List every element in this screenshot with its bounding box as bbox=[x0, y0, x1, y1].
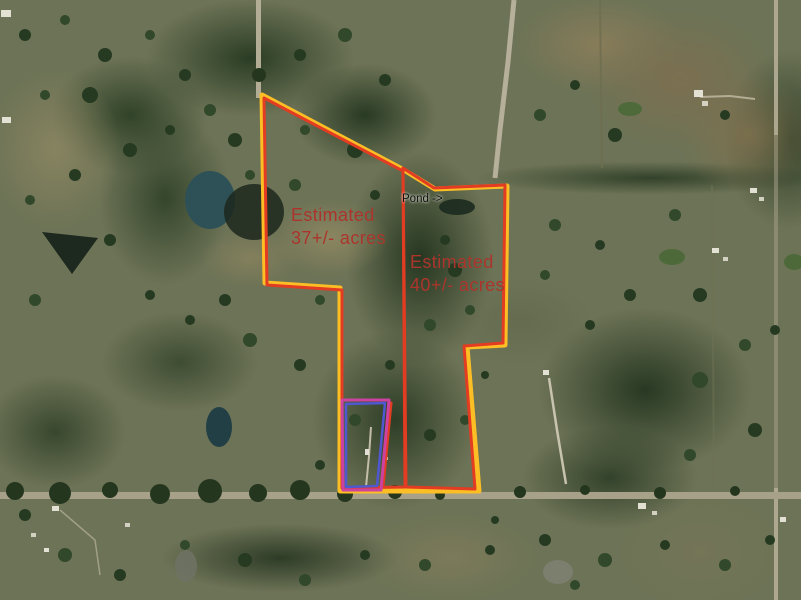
pond-label: Pond -> bbox=[402, 193, 443, 205]
driveways bbox=[366, 378, 566, 487]
satellite-map: Estimated 37+/- acres Estimated 40+/- ac… bbox=[0, 0, 801, 600]
parcel-40-acreage-label: Estimated 40+/- acres bbox=[410, 251, 505, 297]
parcel-37-acreage-label: Estimated 37+/- acres bbox=[291, 204, 386, 250]
pond-small-left bbox=[206, 407, 232, 447]
map-features-layer bbox=[0, 0, 801, 600]
ponds bbox=[42, 102, 801, 584]
pond-right-edge bbox=[784, 254, 801, 270]
road-tree-line bbox=[6, 68, 740, 504]
parcel-37-boundary bbox=[264, 98, 405, 488]
parcel-40-boundary bbox=[403, 168, 505, 489]
pond-dark-left bbox=[42, 232, 98, 274]
parcel-37-label-line2: 37+/- acres bbox=[291, 227, 386, 250]
buildings bbox=[1, 10, 786, 552]
pond-in-parcel-40 bbox=[439, 199, 475, 215]
parcel-40-label-line2: 40+/- acres bbox=[410, 274, 505, 297]
pond-bottom-left bbox=[175, 550, 197, 582]
pond-mid-right bbox=[659, 249, 685, 265]
pond-bottom-center bbox=[543, 560, 573, 584]
pond-top-right bbox=[618, 102, 642, 116]
tree-specks bbox=[19, 15, 780, 590]
parcel-40-label-line1: Estimated bbox=[410, 251, 505, 274]
pond-shadow bbox=[224, 184, 284, 240]
parcel-37-label-line1: Estimated bbox=[291, 204, 386, 227]
roads bbox=[0, 0, 801, 600]
